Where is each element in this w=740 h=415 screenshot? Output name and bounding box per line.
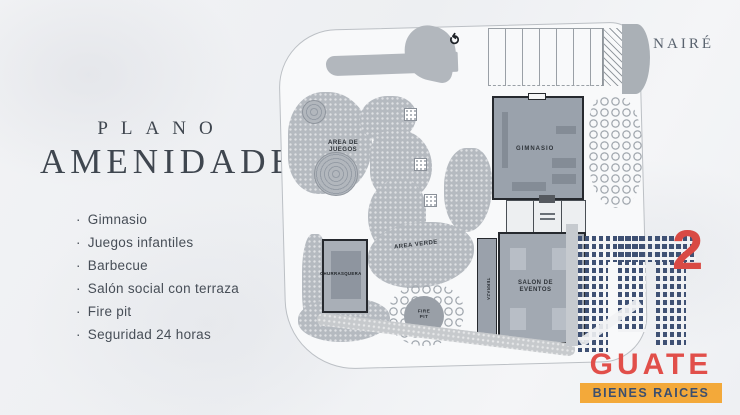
amenity-label: Seguridad 24 horas (88, 327, 211, 342)
bullet: · (76, 304, 81, 319)
area-juegos-label: AREA DE JUEGOS (328, 140, 358, 154)
list-item: ·Gimnasio (76, 208, 270, 231)
panel-title-small: PLANO (40, 118, 270, 140)
hatched-road (602, 28, 624, 86)
m2-exponent: 2 (672, 222, 703, 278)
bullet: · (76, 235, 81, 250)
amenity-label: Gimnasio (88, 212, 147, 227)
picnic-table-icon (404, 108, 417, 121)
bullet: · (76, 281, 81, 296)
playground-spiral (314, 152, 358, 196)
fire-pit-label: FIRE PIT (408, 309, 440, 320)
amenity-list: ·Gimnasio ·Juegos infantiles ·Barbecue ·… (40, 208, 270, 346)
amenity-label: Fire pit (88, 304, 132, 319)
page-title: AMENIDADES (40, 142, 270, 182)
terrace-label: TERRAZA (485, 278, 490, 301)
amenities-panel: PLANO AMENIDADES ·Gimnasio ·Juegos infan… (40, 118, 270, 346)
landscape-blob (622, 24, 650, 94)
gym-equipment (552, 158, 576, 168)
room-label-line (540, 213, 555, 215)
room-label-line (540, 218, 555, 220)
vestibule (539, 195, 555, 203)
amenity-label: Salón social con terraza (88, 281, 239, 296)
bullet: · (76, 258, 81, 273)
gym-equipment (512, 182, 546, 191)
playground-spiral (302, 100, 326, 124)
wall (533, 201, 534, 235)
gym-door (528, 93, 546, 100)
brand-logo: NAIRÉ (653, 36, 714, 53)
amenity-label: Juegos infantiles (88, 235, 194, 250)
bullet: · (76, 327, 81, 342)
churrasquera-building: CHURRASQUERA (322, 239, 368, 313)
churrasquera-label: CHURRASQUERA (320, 272, 362, 277)
picnic-table-icon (414, 158, 427, 171)
list-item: ·Fire pit (76, 300, 270, 323)
tree-cluster (588, 96, 642, 208)
picnic-table-icon (424, 194, 437, 207)
amenity-label: Barbecue (88, 258, 148, 273)
terrace-strip: TERRAZA (477, 238, 497, 344)
background-band (566, 224, 578, 346)
gym-label: GIMNASIO (516, 146, 554, 153)
agency-name: GUATE (578, 348, 724, 382)
furniture (510, 248, 526, 270)
bullet: · (76, 212, 81, 227)
list-item: ·Salón social con terraza (76, 277, 270, 300)
wall (561, 201, 562, 235)
list-item: ·Seguridad 24 horas (76, 323, 270, 346)
parking-stalls (488, 28, 604, 86)
agency-tagline: BIENES RAICES (580, 383, 722, 403)
furniture (510, 308, 526, 330)
gym-equipment (556, 126, 576, 134)
gym-equipment (552, 174, 576, 184)
list-item: ·Barbecue (76, 254, 270, 277)
gym-building: GIMNASIO (492, 96, 584, 200)
entry-arrow-icon: ⟲ (444, 31, 463, 46)
event-hall-label: SALON DE EVENTOS (518, 280, 553, 294)
list-item: ·Juegos infantiles (76, 231, 270, 254)
gym-equipment (502, 112, 508, 168)
